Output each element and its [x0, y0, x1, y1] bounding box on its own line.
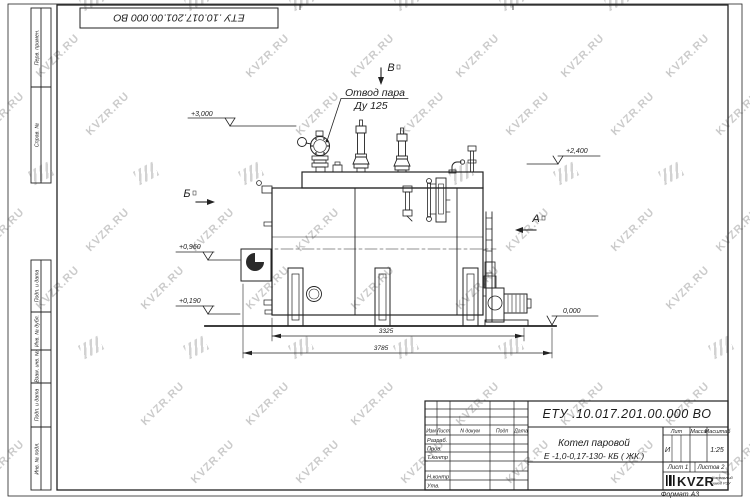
top-stamp-doc-number: ЕТУ .10.017.201.00.000 ВО — [113, 12, 244, 24]
safety-valve-1 — [353, 120, 369, 172]
left-margin-top-columns: Перв. примен. Справ. № — [31, 8, 51, 183]
kvzr-logo: KVZR Котельный завод РЭУ — [666, 474, 734, 489]
title-block: Изм Лист N докум Подп Дата Разраб. Пров.… — [425, 401, 734, 490]
rear-ladder — [483, 212, 492, 322]
elevation-mark-3000: +3,000 — [188, 111, 296, 126]
boiler-drawing-canvas: ЕТУ .10.017.201.00.000 ВО Перв. примен. … — [0, 0, 750, 500]
elevation-mark-0190: +0,190 — [176, 298, 240, 314]
view-arrow-left: Б — [183, 188, 215, 205]
label-vzam-inv: Взам. инв. № — [35, 350, 41, 382]
boiler-body — [272, 188, 483, 315]
kvzr-logo-text: KVZR — [677, 474, 715, 489]
left-margin-bottom-columns: Подп. и дата Инв. № дубл. Взам. инв. № П… — [31, 260, 51, 490]
safety-valve-2 — [394, 128, 410, 172]
format-note: Формат А3 — [661, 492, 699, 499]
title-doc-number: ЕТУ .10.017.201.00.000 ВО — [543, 407, 712, 421]
sign-row-tkontr: Т.контр — [427, 455, 448, 461]
manhole — [307, 287, 322, 302]
left-shell-fittings — [257, 181, 272, 314]
boiler-elevation-view: Отвод пара Ду 125 В Б А — [176, 62, 600, 358]
dimension-3325-value: 3325 — [379, 328, 394, 335]
steam-drum — [302, 172, 483, 188]
scale-value: 1:25 — [710, 447, 724, 454]
logo-caption-line1: Котельный — [712, 476, 734, 480]
right-drum-fitting — [468, 146, 476, 172]
flue-blower-assembly — [484, 262, 531, 326]
sheet-frame — [8, 4, 742, 496]
logo-caption-line2: завод РЭУ — [711, 482, 731, 486]
scale-label: Масштаб — [705, 429, 732, 435]
level-gauge-glass — [403, 186, 412, 221]
elevation-mark-0000: 0,000 — [547, 308, 598, 325]
view-letter-b: Б — [183, 188, 190, 200]
product-name-line1: Котел паровой — [558, 438, 630, 449]
sheet-number: Лист 1 — [667, 465, 688, 471]
rev-header-podp: Подп — [496, 429, 509, 435]
lit-value: И — [665, 445, 671, 454]
label-perv-primen: Перв. примен. — [35, 30, 41, 66]
view-letter-v: В — [387, 62, 394, 74]
sign-row-nkontr: Н.контр — [427, 475, 449, 481]
label-sprav-no: Справ. № — [35, 123, 41, 148]
lit-label: Лит — [670, 429, 683, 435]
dimension-3785-value: 3785 — [374, 345, 389, 352]
steam-outlet-callout: Отвод пара Ду 125 — [326, 87, 408, 142]
siphon-elbow — [449, 160, 465, 173]
elevation-0000-label: 0,000 — [563, 308, 581, 315]
rev-header-izm: Изм — [426, 429, 436, 435]
rev-header-data: Дата — [513, 429, 528, 435]
label-podp-data-1: Подп. и дата — [35, 270, 41, 303]
product-name-line2: Е -1,0-0,17-130- КБ ( ЖК ) — [544, 451, 645, 461]
sign-row-razrab: Разраб. — [427, 438, 447, 444]
sheets-total: Листов 2 — [697, 465, 726, 471]
callout-line1: Отвод пара — [345, 87, 405, 99]
callout-line2: Ду 125 — [353, 100, 387, 112]
sign-row-prov: Пров. — [427, 447, 442, 453]
elevation-0190-label: +0,190 — [179, 298, 201, 305]
elevation-0960-label: +0,960 — [179, 244, 201, 251]
rev-header-ndokum: N докум — [460, 429, 480, 435]
label-inv-dubl: Инв. № дубл. — [35, 315, 41, 347]
label-podp-data-2: Подп. и дата — [35, 389, 41, 422]
support-legs — [288, 268, 478, 326]
view-letter-a: А — [531, 213, 539, 225]
elevation-mark-2400: +2,400 — [527, 148, 600, 164]
elevation-3000-label: +3,000 — [191, 111, 213, 118]
elevation-2400-label: +2,400 — [566, 148, 588, 155]
rev-header-list: Лист — [436, 429, 451, 435]
level-indicator-column — [427, 178, 451, 222]
dimension-3785: 3785 — [243, 284, 552, 358]
burner-unit — [241, 249, 271, 281]
view-arrow-right: А — [515, 213, 545, 233]
label-inv-podl: Инв. № подл. — [35, 442, 41, 474]
steam-outlet-valve — [298, 131, 330, 172]
top-document-stamp: ЕТУ .10.017.201.00.000 ВО — [80, 8, 278, 28]
drawing-sheet: KVZR.RUKVZR.RUKVZR.RUKVZR.RUKVZR.RUKVZR.… — [0, 0, 750, 500]
view-arrow-top: В — [378, 62, 400, 85]
elevation-mark-0960: +0,960 — [176, 244, 240, 260]
sign-row-utv: Утв. — [426, 484, 440, 490]
drum-cap-fitting — [333, 162, 342, 172]
